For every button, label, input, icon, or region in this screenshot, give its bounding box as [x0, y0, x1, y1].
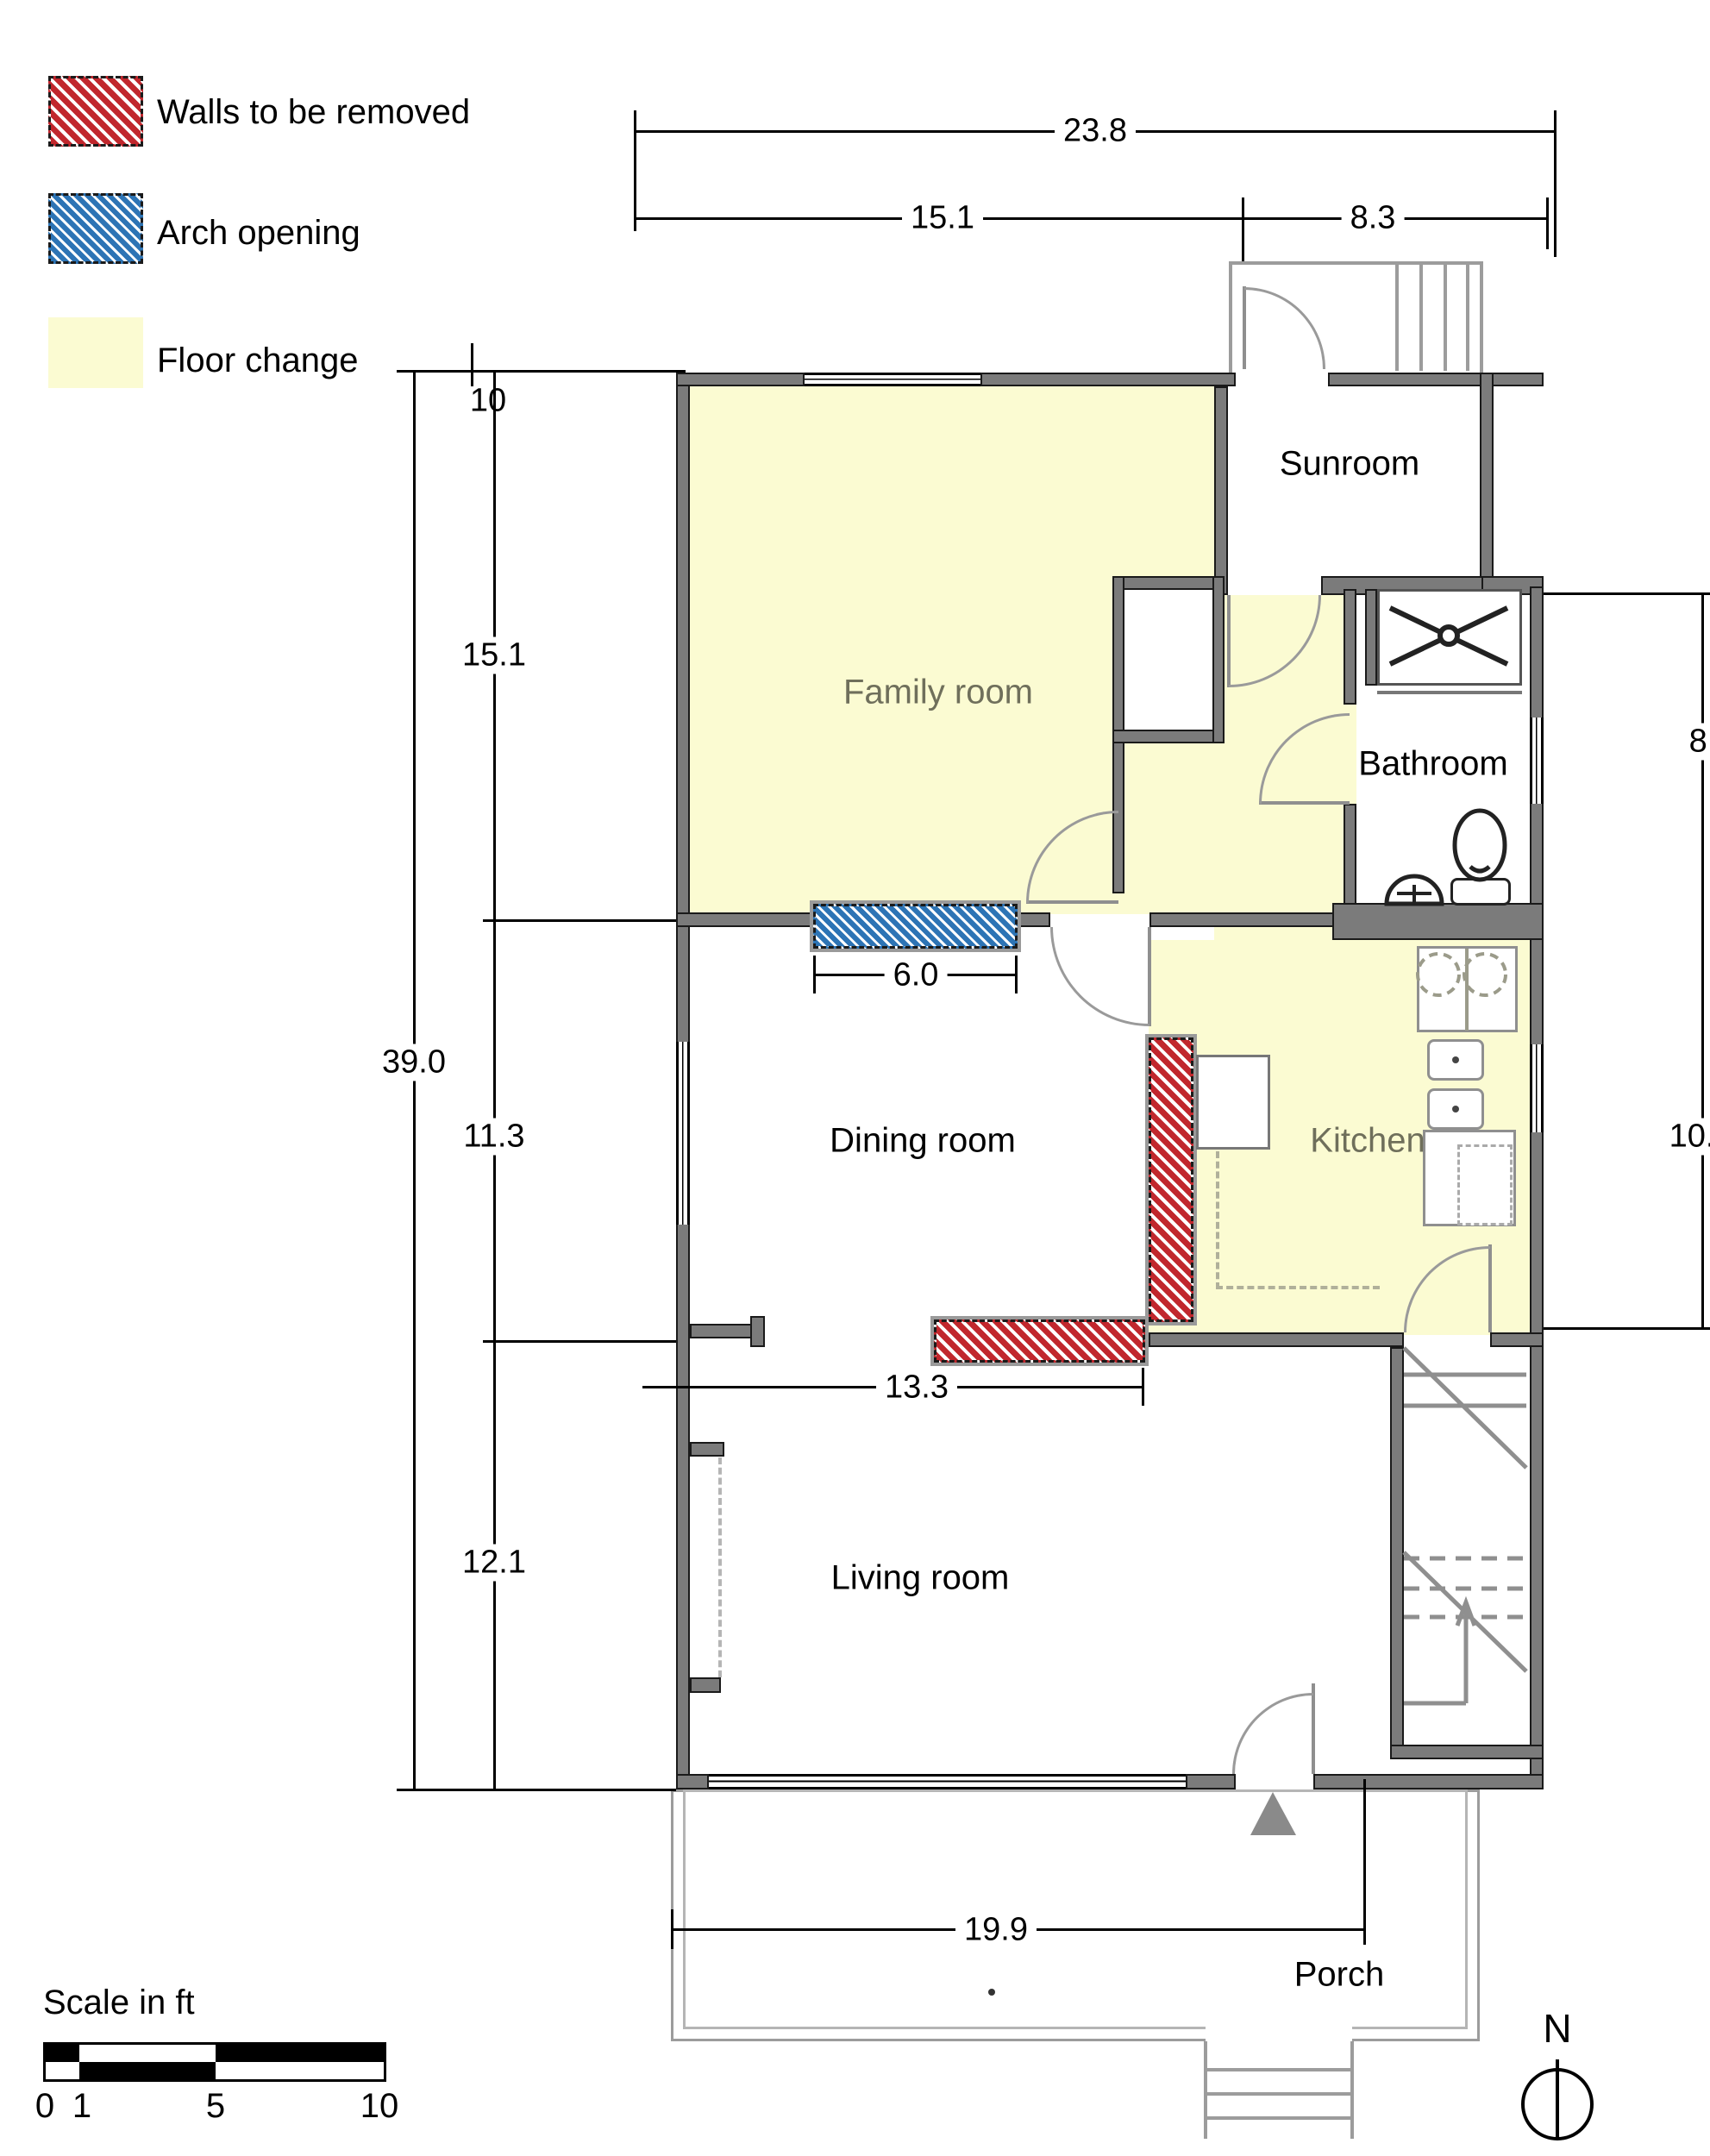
dim-tick — [1015, 956, 1018, 993]
scale-title: Scale in ft — [43, 1984, 195, 2022]
dim-tick — [1546, 197, 1549, 249]
scale-tick-5: 5 — [206, 2087, 225, 2126]
dim-tick — [1554, 110, 1557, 257]
dim-bath-height: 8.0 — [1681, 724, 1710, 761]
dim-tick — [671, 1909, 673, 1949]
dim-line-bath-height — [1701, 593, 1704, 940]
sunroom-label: Sunroom — [1280, 445, 1419, 484]
ext-line-bath-top — [1544, 592, 1710, 595]
dim-left-note: 10 — [461, 383, 515, 420]
shower-x-icon — [1390, 608, 1507, 664]
bathroom-label: Bathroom — [1358, 745, 1507, 784]
floor-plan: Walls to be removed Arch opening Floor c… — [0, 0, 1710, 2156]
ext-line-family-dining — [483, 919, 676, 922]
ext-line-porch — [1363, 1779, 1366, 1945]
dim-kitchen-height: 10. — [1661, 1119, 1710, 1156]
dim-upper-right: 8.3 — [1342, 200, 1405, 237]
porch-steps — [1206, 2041, 1352, 2139]
kitchen-label: Kitchen — [1310, 1122, 1425, 1161]
dim-removed-wall: 13.3 — [876, 1369, 957, 1407]
dim-arch-width: 6.0 — [885, 957, 948, 994]
dim-tick — [634, 110, 636, 231]
north-arrow-icon — [1523, 2059, 1592, 2139]
ext-line-kitchen-bottom — [1544, 1327, 1710, 1330]
living-room-label: Living room — [831, 1559, 1010, 1598]
scale-bar-seg-3 — [216, 2042, 386, 2062]
dim-dining-height: 11.3 — [454, 1119, 533, 1156]
scale-tick-10: 10 — [360, 2087, 399, 2126]
dim-tick — [813, 956, 816, 993]
symbol-overlay — [0, 0, 1710, 2156]
north-label: N — [1543, 2005, 1571, 2052]
dim-tick — [1142, 1368, 1144, 1406]
scale-tick-1: 1 — [72, 2087, 91, 2126]
scale-bar-seg-2 — [79, 2062, 216, 2082]
entry-steps — [1397, 264, 1468, 371]
ext-line-bottom — [397, 1789, 676, 1791]
stove-burners-icon — [1418, 949, 1506, 1031]
ext-line-dining-living — [483, 1340, 676, 1343]
dim-overall-width: 23.8 — [1055, 113, 1136, 150]
toilet-icon — [1455, 811, 1505, 880]
dim-tick — [471, 343, 473, 386]
entry-arrow-icon — [1250, 1792, 1296, 1835]
dim-total-height: 39.0 — [373, 1044, 454, 1081]
porch-label: Porch — [1294, 1956, 1385, 1995]
porch-dot — [988, 1989, 995, 1996]
scale-tick-0: 0 — [35, 2087, 54, 2126]
ext-line-top — [397, 370, 686, 373]
dim-upper-left: 15.1 — [902, 200, 983, 237]
family-room-label: Family room — [843, 674, 1033, 712]
bathroom-sink-icon — [1387, 876, 1442, 904]
dim-living-height: 12.1 — [454, 1545, 535, 1582]
staircase — [1404, 1348, 1526, 1703]
dining-room-label: Dining room — [830, 1122, 1016, 1161]
dim-family-height: 15.1 — [454, 637, 535, 674]
scale-bar-seg-1 — [43, 2042, 79, 2062]
dim-bottom-width: 19.9 — [955, 1912, 1037, 1949]
dim-tick — [1242, 197, 1244, 261]
